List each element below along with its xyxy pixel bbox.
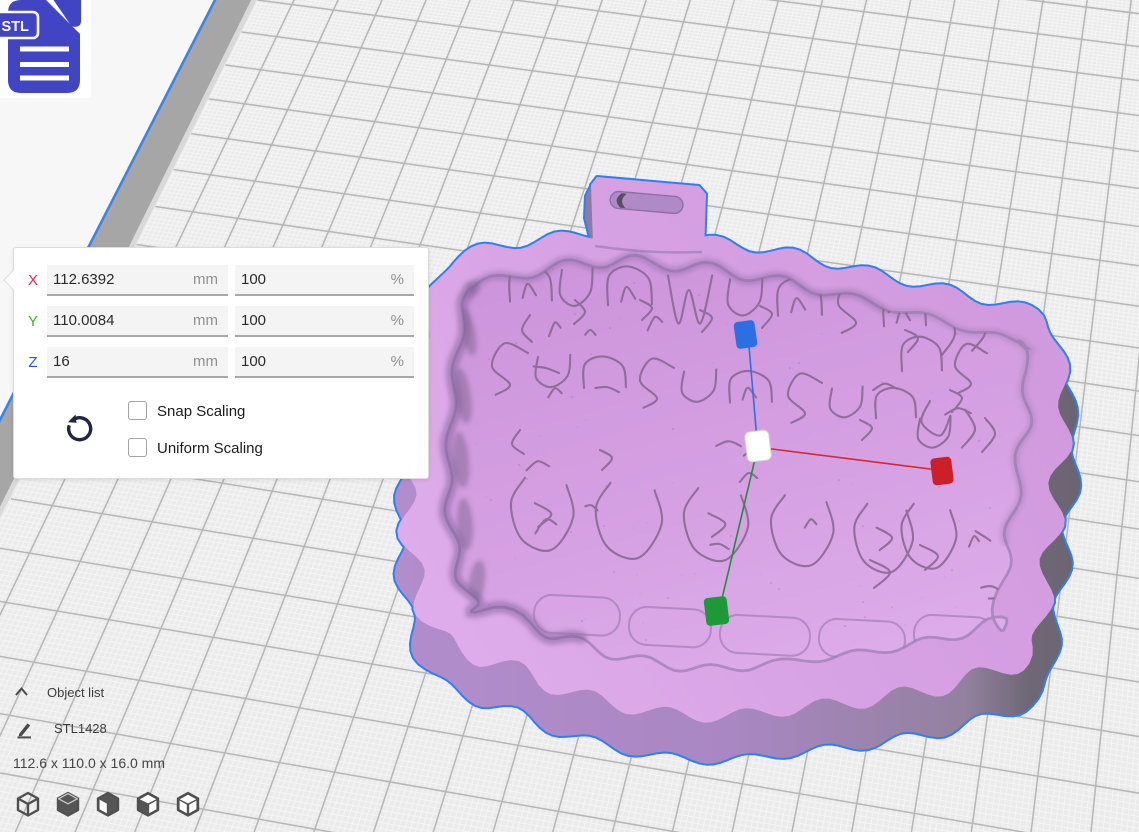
svg-text:STL: STL	[2, 19, 30, 35]
